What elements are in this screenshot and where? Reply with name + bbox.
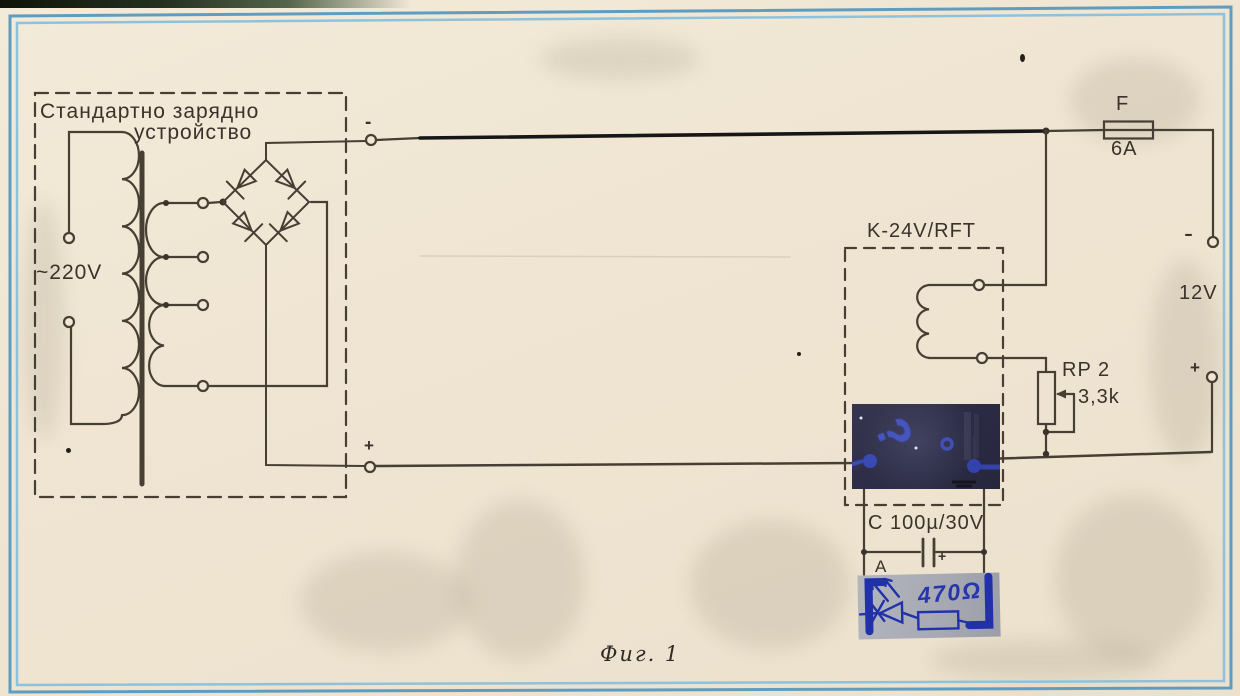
show-through-line <box>420 256 790 257</box>
secondary-tap-terminal <box>198 381 208 391</box>
ink-blob <box>863 454 877 468</box>
junction-dot <box>163 254 169 260</box>
charger-minus-terminal <box>366 135 376 145</box>
charger-minus-sign: - <box>365 112 372 134</box>
secondary-tap-terminal <box>198 300 208 310</box>
charger-plus-sign: + <box>364 436 375 456</box>
battery-voltage-label: 12V <box>1179 282 1218 305</box>
capacitor-plus-sign: + <box>938 548 947 564</box>
mains-terminal <box>64 317 74 327</box>
relay-label: K-24V/RFT <box>867 220 976 243</box>
junction-dot <box>981 549 987 555</box>
white-speck <box>860 417 863 420</box>
ink-ring <box>942 439 952 449</box>
potentiometer-symbol <box>1038 372 1074 457</box>
mains-terminal <box>64 233 74 243</box>
junction-dot <box>1043 451 1049 457</box>
wire <box>208 202 327 386</box>
figure-caption: Фиг. 1 <box>600 642 680 666</box>
wire-top-rail <box>376 128 1104 141</box>
resistor-symbol <box>902 611 970 629</box>
photo-patch-led: 470Ω <box>857 573 1000 640</box>
battery-minus-sign: - <box>1184 218 1194 249</box>
relay-coil-terminal <box>977 353 987 363</box>
photo-patch-dark: ? <box>852 404 1000 489</box>
charger-dashed-box <box>35 93 346 497</box>
wire-bottom-rail <box>375 452 1211 466</box>
secondary-tap-terminal <box>198 252 208 262</box>
relay-coil <box>917 131 1046 372</box>
battery-plus-sign: + <box>1190 358 1201 378</box>
secondary-tap-terminal <box>198 198 208 208</box>
mains-voltage-label: ~220V <box>36 261 102 285</box>
led-arrow-icon <box>884 579 898 597</box>
junction-dot <box>163 200 169 206</box>
wiper-arrow-icon <box>1056 390 1066 399</box>
junction-dot <box>163 302 169 308</box>
junction-dot <box>861 549 867 555</box>
potentiometer-value-label: 3,3k <box>1078 386 1120 409</box>
battery-plus-terminal <box>1207 372 1217 382</box>
fuse-name-label: F <box>1116 93 1129 116</box>
bridge-rectifier <box>223 141 366 466</box>
wire <box>208 202 221 203</box>
white-speck <box>915 447 918 450</box>
battery-minus-terminal <box>1208 237 1218 247</box>
ghost-bar <box>964 412 971 460</box>
charger-box-label: устройство <box>134 121 252 145</box>
fuse-rating-label: 6A <box>1111 138 1137 161</box>
junction-dot <box>1043 429 1049 435</box>
dark-mark <box>952 482 976 486</box>
capacitor-label: C 100µ/30V <box>868 512 984 535</box>
ink-stroke <box>852 461 863 464</box>
charger-plus-terminal <box>365 462 375 472</box>
relay-coil-terminal <box>974 280 984 290</box>
scanned-schematic-page: Стандартно зарядно устройство ~220V - + … <box>0 0 1240 696</box>
potentiometer-name-label: RP 2 <box>1062 359 1110 382</box>
transformer-secondary-winding <box>146 198 208 391</box>
